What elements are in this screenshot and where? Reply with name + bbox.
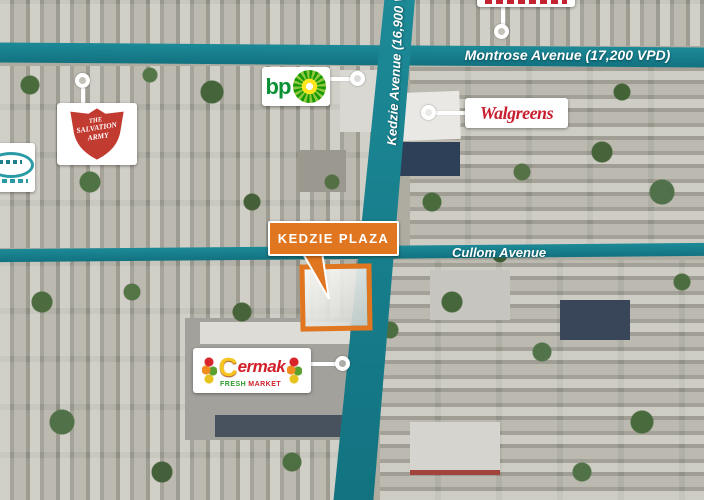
cermak-fresh-label: FRESH <box>220 381 246 388</box>
cermak-wordmark: Cermak FRESH MARKET <box>219 354 285 388</box>
cermak-logo-card: Cermak FRESH MARKET <box>193 348 311 393</box>
cermak-location-marker <box>335 356 350 371</box>
kedzie-plaza-callout: KEDZIE PLAZA <box>268 221 399 256</box>
walgreens-lead-line <box>436 111 466 115</box>
partial-label-card-top-edge <box>477 0 575 7</box>
cermak-market-label: MARKET <box>248 381 281 388</box>
street-label-cullom: Cullom Avenue <box>452 245 546 260</box>
bp-location-marker <box>350 71 365 86</box>
cermak-rest: ermak <box>238 358 286 375</box>
walgreens-logo-card: Walgreens <box>465 98 568 128</box>
cermak-produce-icon-left <box>202 357 217 385</box>
oval-logo-icon <box>0 152 34 178</box>
walgreens-location-marker <box>421 105 436 120</box>
aerial-site-map: Montrose Avenue (17,200 VPD) Cullom Aven… <box>0 0 704 500</box>
bp-logo-card: bp <box>262 67 330 106</box>
partial-label-lead-line <box>501 5 505 26</box>
oval-logo-text-fragment <box>0 160 22 164</box>
salvation-army-location-marker <box>75 73 90 88</box>
bp-lead-line <box>330 77 352 81</box>
partial-red-text-fragment <box>485 0 567 4</box>
cermak-lead-line <box>308 362 338 366</box>
bp-wordmark: bp <box>266 74 291 100</box>
street-label-montrose: Montrose Avenue (17,200 VPD) <box>440 47 695 63</box>
partial-label-location-marker <box>494 24 509 39</box>
walgreens-wordmark: Walgreens <box>480 103 553 124</box>
oval-logo-subtext-fragment <box>0 179 28 183</box>
callout-pointer <box>296 252 336 302</box>
bp-helios-icon <box>293 70 326 103</box>
partial-logo-card-left-edge <box>0 143 35 192</box>
salvation-army-logo-card: THE SALVATION ARMY <box>57 103 137 165</box>
cermak-produce-icon-right <box>287 357 302 385</box>
kedzie-plaza-label: KEDZIE PLAZA <box>278 231 389 246</box>
cermak-initial: C <box>219 354 238 380</box>
salvation-army-lead-line <box>81 88 85 104</box>
